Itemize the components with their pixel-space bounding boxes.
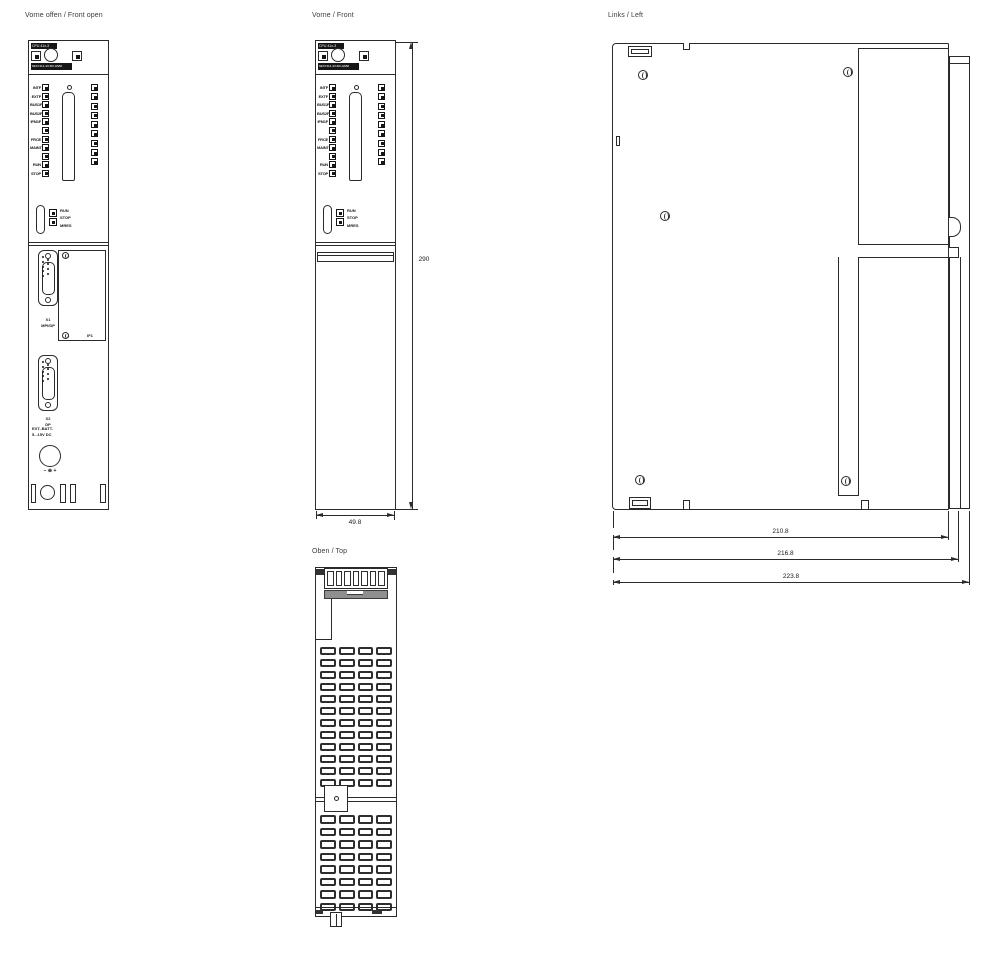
slot-pin-icon — [354, 85, 359, 90]
vent-slot — [339, 719, 355, 727]
vent-slot — [339, 865, 355, 874]
pin-icon — [47, 364, 49, 366]
vent-slot — [358, 779, 374, 787]
dsub-screw-icon — [45, 402, 51, 408]
led-indicator — [329, 153, 336, 160]
led-row: MAINT — [30, 144, 51, 151]
memory-card-slot — [349, 92, 362, 181]
vent-slot — [339, 743, 355, 751]
led-label: RUN — [30, 162, 42, 167]
vent-slot — [376, 828, 392, 837]
top-view-body — [315, 567, 397, 917]
led-column-right — [91, 84, 99, 168]
led-row: STOP — [317, 170, 338, 177]
dim-arrow-icon — [962, 580, 969, 584]
led-row: MAINT — [317, 144, 338, 151]
dim-extension-line — [396, 509, 418, 510]
pin-icon — [42, 371, 44, 373]
rail-inner-line — [960, 257, 961, 509]
vent-slot — [376, 707, 392, 715]
vent-slot — [376, 683, 392, 691]
battery-socket — [39, 445, 61, 467]
mounting-hole-icon — [331, 48, 345, 62]
dsub-connector-x2 — [38, 355, 58, 411]
led-label: INTF — [30, 85, 42, 90]
pin-icon — [42, 361, 44, 363]
side-slot-mark — [616, 136, 620, 146]
vent-slot — [358, 840, 374, 849]
vent-slot — [339, 731, 355, 739]
connector-slat — [361, 571, 368, 586]
mode-position-mark — [336, 218, 344, 226]
led-indicator — [329, 110, 336, 117]
led-column-left: INTF EXTF BUS1F BUS2F IFM1F FRCE — [30, 84, 51, 179]
vent-slot — [358, 659, 374, 667]
led-label: STOP — [317, 171, 329, 176]
view-title-front-open: Vorne offen / Front open — [25, 12, 103, 19]
dim-arrow-icon — [409, 42, 413, 49]
led-indicator — [42, 161, 49, 168]
led-indicator — [378, 140, 385, 147]
vent-slot — [376, 743, 392, 751]
fastener-socket-icon — [72, 51, 82, 61]
vent-slot — [376, 779, 392, 787]
faceplate-header: CPU 41x-3 6ES7414-3XJ00-0AB0 — [316, 41, 395, 75]
vent-slot — [376, 659, 392, 667]
vent-slot — [376, 815, 392, 824]
led-row — [30, 153, 51, 160]
pin-icon — [42, 380, 44, 382]
dim-height-value: 290 — [415, 256, 433, 263]
led-indicator — [42, 118, 49, 125]
pin-icon — [47, 268, 49, 270]
vent-slot — [339, 890, 355, 899]
vent-slot — [358, 707, 374, 715]
vent-slot — [320, 755, 336, 763]
connector-end-block — [316, 569, 324, 575]
batt-voltage-label: 5...15V DC — [32, 432, 70, 437]
led-indicator — [91, 149, 98, 156]
bottom-bump — [683, 500, 690, 509]
view-title-front: Vorne / Front — [312, 12, 354, 19]
vent-slot — [320, 695, 336, 703]
slot-pin-icon — [67, 85, 72, 90]
vent-slot — [376, 755, 392, 763]
screw-icon — [635, 475, 645, 485]
pin-icon — [42, 275, 44, 277]
front-open-view: CPU 41x-3 6ES7414-3XJ00-0AB0 INTF EXTF B… — [28, 40, 109, 510]
rear-panel-line — [858, 48, 948, 49]
vent-slot — [320, 828, 336, 837]
vent-slot — [376, 767, 392, 775]
dim-width-value: 49.8 — [316, 519, 394, 526]
led-label: EXTF — [30, 94, 42, 99]
led-row — [317, 153, 338, 160]
led-row: STOP — [30, 170, 51, 177]
led-row: BUS1F — [30, 101, 51, 108]
protrusion-line — [336, 914, 337, 926]
led-indicator — [42, 93, 49, 100]
vent-slot — [320, 815, 336, 824]
switch-protrusion — [330, 912, 342, 927]
dim-arrow-icon — [409, 502, 413, 509]
led-indicator — [378, 112, 385, 119]
locking-tab — [324, 785, 348, 812]
vent-grid-upper — [320, 647, 392, 787]
dim-arrow-icon — [941, 535, 948, 539]
vent-slot — [339, 683, 355, 691]
rear-panel-line — [858, 48, 859, 245]
order-number-label: 6ES7414-3XJ00-0AB0 — [318, 63, 359, 70]
rear-channel — [838, 257, 859, 496]
mode-position-label: MRES — [347, 222, 367, 229]
vent-slot — [358, 767, 374, 775]
led-indicator — [91, 93, 98, 100]
screw-icon — [638, 70, 648, 80]
led-label: IFM1F — [30, 119, 42, 124]
dimensional-drawing: Vorne offen / Front open Vorne / Front L… — [0, 0, 1000, 956]
led-row: RUN — [317, 161, 338, 168]
mode-selector-knob — [36, 205, 45, 234]
screw-icon — [660, 211, 670, 221]
led-row: RUN — [30, 161, 51, 168]
mode-position-label: STOP — [60, 214, 80, 221]
pin-icon — [42, 375, 44, 377]
vent-slot — [320, 719, 336, 727]
vent-slot — [31, 484, 36, 503]
led-indicator — [329, 101, 336, 108]
dim-depth-outer-value: 223.8 — [613, 573, 969, 580]
led-indicator — [91, 158, 98, 165]
x1-name-label: X1 — [34, 317, 62, 322]
connector-slat — [353, 571, 360, 586]
connector-end-block — [387, 569, 396, 575]
mode-position-label: MRES — [60, 222, 80, 229]
vent-slot — [376, 731, 392, 739]
pin-icon — [47, 273, 49, 275]
dsub-pin-column — [47, 259, 49, 275]
vent-slot — [339, 828, 355, 837]
led-label: MAINT — [30, 145, 42, 150]
led-indicator — [329, 93, 336, 100]
vent-slot — [358, 890, 374, 899]
vent-slot — [339, 840, 355, 849]
front-edge-line — [316, 907, 396, 908]
vent-slot — [320, 659, 336, 667]
panel-divider — [316, 242, 395, 243]
led-label: BUS2F — [317, 111, 329, 116]
vent-slot — [376, 671, 392, 679]
mounting-tab — [629, 497, 651, 509]
vent-slot — [339, 671, 355, 679]
vent-slot — [358, 853, 374, 862]
vent-slot — [339, 767, 355, 775]
top-notch — [683, 43, 690, 50]
mode-position-label: STOP — [347, 214, 367, 221]
dim-line-depth-mid — [613, 559, 958, 560]
led-indicator — [329, 144, 336, 151]
vent-slot — [376, 865, 392, 874]
led-row: IFM1F — [30, 118, 51, 125]
vent-slot — [339, 878, 355, 887]
vent-slot — [320, 878, 336, 887]
led-indicator — [42, 101, 49, 108]
pin-icon — [47, 368, 49, 370]
panel-divider — [29, 242, 108, 243]
panel-divider — [29, 245, 108, 246]
pin-icon — [47, 373, 49, 375]
dim-arrow-icon — [951, 557, 958, 561]
view-title-top: Oben / Top — [312, 548, 347, 555]
x2-name-label: X2 — [34, 416, 62, 421]
led-indicator — [42, 144, 49, 151]
vent-slot — [320, 840, 336, 849]
dim-depth-inner-value: 210.8 — [613, 528, 948, 535]
left-view-body — [612, 43, 949, 510]
led-column-left: INTF EXTF BUS1F BUS2F IFM1F FRCE — [317, 84, 338, 179]
pin-icon — [42, 256, 44, 258]
dim-arrow-icon — [613, 557, 620, 561]
vent-slot — [358, 647, 374, 655]
led-row — [317, 127, 338, 134]
connector-slat — [344, 571, 351, 586]
door-handle-bar — [317, 252, 394, 262]
led-label: INTF — [317, 85, 329, 90]
led-label: FRCE — [317, 137, 329, 142]
polarity-symbol: − ⊕ + — [37, 468, 63, 474]
vent-slot — [100, 484, 106, 503]
rear-step-line — [858, 244, 948, 245]
led-indicator — [329, 118, 336, 125]
if1-label: IF1 — [76, 333, 104, 338]
mounting-hole-icon — [44, 48, 58, 62]
led-indicator — [329, 136, 336, 143]
vent-slot — [358, 743, 374, 751]
mode-position-label: RUN — [347, 207, 367, 214]
vent-slot — [320, 707, 336, 715]
mode-switch-labels: RUNSTOPMRES — [347, 207, 367, 229]
dsub-screw-icon — [45, 297, 51, 303]
dim-extension-line — [396, 42, 418, 43]
mode-position-mark — [336, 209, 344, 217]
led-indicator — [42, 136, 49, 143]
led-indicator — [91, 130, 98, 137]
led-indicator — [378, 103, 385, 110]
vent-slot — [358, 671, 374, 679]
led-indicator — [42, 110, 49, 117]
dim-extension-line — [969, 511, 970, 585]
dsub-connector-x1 — [38, 250, 58, 306]
led-indicator — [378, 130, 385, 137]
vent-slot — [320, 865, 336, 874]
screw-icon — [841, 476, 851, 486]
fastener-socket-icon — [318, 51, 328, 61]
dim-line-height — [412, 42, 413, 509]
led-indicator — [91, 84, 98, 91]
screw-icon — [62, 252, 69, 259]
mode-switch-labels: RUNSTOPMRES — [60, 207, 80, 229]
connector-slat — [327, 571, 334, 586]
mode-position-mark — [49, 218, 57, 226]
dim-extension-line — [958, 511, 959, 562]
led-row: INTF — [317, 84, 338, 91]
led-indicator — [42, 84, 49, 91]
vent-grid-lower — [320, 815, 392, 911]
led-indicator — [378, 149, 385, 156]
vent-slot — [320, 647, 336, 655]
led-label: RUN — [317, 162, 329, 167]
dim-line-depth-outer — [613, 582, 969, 583]
vent-slot — [339, 853, 355, 862]
dsub-pin-column — [42, 256, 44, 277]
rear-step-line — [858, 257, 948, 258]
edge-mark — [372, 910, 382, 914]
led-indicator — [91, 140, 98, 147]
fastener-socket-icon — [31, 51, 41, 61]
pin-icon — [42, 366, 44, 368]
connector-slat — [378, 571, 385, 586]
vent-slot — [320, 683, 336, 691]
edge-mark — [316, 910, 323, 914]
x1-type-label: MPI/DP — [32, 323, 64, 328]
dim-extension-line — [394, 511, 395, 520]
vent-slot — [358, 731, 374, 739]
led-row: EXTF — [317, 93, 338, 100]
rail-cap-line — [949, 63, 970, 64]
dsub-pin-column — [42, 361, 44, 382]
rail-step-block — [948, 247, 959, 258]
pin-icon — [42, 266, 44, 268]
vent-slot — [358, 815, 374, 824]
housing-step-line — [331, 599, 332, 640]
vent-slot — [320, 767, 336, 775]
vent-slot — [320, 671, 336, 679]
dim-extension-line — [948, 511, 949, 540]
backplane-connector — [324, 568, 388, 589]
led-indicator — [91, 103, 98, 110]
pin-icon — [42, 270, 44, 272]
vent-slot — [339, 695, 355, 703]
led-label: BUS2F — [30, 111, 42, 116]
led-indicator — [91, 121, 98, 128]
vent-slot — [358, 828, 374, 837]
mode-position-label: RUN — [60, 207, 80, 214]
led-column-right — [378, 84, 386, 168]
vent-slot — [339, 647, 355, 655]
led-indicator — [42, 170, 49, 177]
pin-icon — [47, 263, 49, 265]
connector-slat — [370, 571, 377, 586]
bottom-bump — [861, 500, 869, 509]
vent-slot — [320, 731, 336, 739]
screw-icon — [62, 332, 69, 339]
vent-slot — [339, 659, 355, 667]
vent-slot — [376, 719, 392, 727]
led-row: EXTF — [30, 93, 51, 100]
vent-slot — [320, 743, 336, 751]
dim-line-width — [316, 515, 394, 516]
led-row: FRCE — [30, 136, 51, 143]
dsub-pin-column — [47, 364, 49, 380]
connector-base-bar — [324, 590, 388, 599]
vent-slot — [70, 484, 76, 503]
view-title-left: Links / Left — [608, 12, 643, 19]
led-indicator — [378, 121, 385, 128]
faceplate-header: CPU 41x-3 6ES7414-3XJ00-0AB0 — [29, 41, 108, 75]
fastener-socket-icon — [359, 51, 369, 61]
vent-slot — [376, 840, 392, 849]
housing-step-line — [316, 639, 331, 640]
connector-slat — [336, 571, 343, 586]
screw-icon — [843, 67, 853, 77]
led-row — [30, 127, 51, 134]
led-indicator — [42, 127, 49, 134]
vent-slot — [358, 719, 374, 727]
vent-slot — [320, 853, 336, 862]
vent-slot — [376, 890, 392, 899]
vent-slot — [339, 815, 355, 824]
dim-depth-mid-value: 216.8 — [613, 550, 958, 557]
pin-icon — [42, 261, 44, 263]
vent-slot — [358, 755, 374, 763]
led-label: FRCE — [30, 137, 42, 142]
vent-slot — [358, 865, 374, 874]
mode-position-mark — [49, 209, 57, 217]
led-indicator — [329, 127, 336, 134]
vent-slot — [339, 707, 355, 715]
led-indicator — [378, 93, 385, 100]
dim-arrow-icon — [387, 513, 394, 517]
vent-slot — [358, 683, 374, 691]
led-row: BUS1F — [317, 101, 338, 108]
panel-divider — [316, 245, 395, 246]
led-indicator — [329, 161, 336, 168]
led-row: INTF — [30, 84, 51, 91]
vent-slot — [376, 695, 392, 703]
mounting-tab — [628, 46, 652, 57]
vent-slot — [320, 890, 336, 899]
led-label: IFM1F — [317, 119, 329, 124]
led-indicator — [378, 158, 385, 165]
vent-slot — [376, 853, 392, 862]
led-row: BUS2F — [30, 110, 51, 117]
ext-batt-label: EXT.-BATT. — [32, 426, 70, 431]
led-indicator — [329, 170, 336, 177]
vent-slot — [376, 878, 392, 887]
led-label: BUS1F — [317, 102, 329, 107]
vent-slot — [339, 755, 355, 763]
vent-slot — [60, 484, 66, 503]
led-indicator — [91, 112, 98, 119]
order-number-label: 6ES7414-3XJ00-0AB0 — [31, 63, 72, 70]
led-label: MAINT — [317, 145, 329, 150]
memory-card-slot — [62, 92, 75, 181]
pin-icon — [47, 259, 49, 261]
dim-arrow-icon — [613, 580, 620, 584]
if1-module-bay — [58, 250, 106, 341]
led-label: EXTF — [317, 94, 329, 99]
led-row: BUS2F — [317, 110, 338, 117]
vent-slot — [376, 647, 392, 655]
led-label: STOP — [30, 171, 42, 176]
dim-arrow-icon — [613, 535, 620, 539]
dim-arrow-icon — [316, 513, 323, 517]
front-view: CPU 41x-3 6ES7414-3XJ00-0AB0 INTF EXTF B… — [315, 40, 396, 510]
led-indicator — [42, 153, 49, 160]
led-indicator — [329, 84, 336, 91]
led-label: BUS1F — [30, 102, 42, 107]
vent-hole — [40, 485, 55, 500]
